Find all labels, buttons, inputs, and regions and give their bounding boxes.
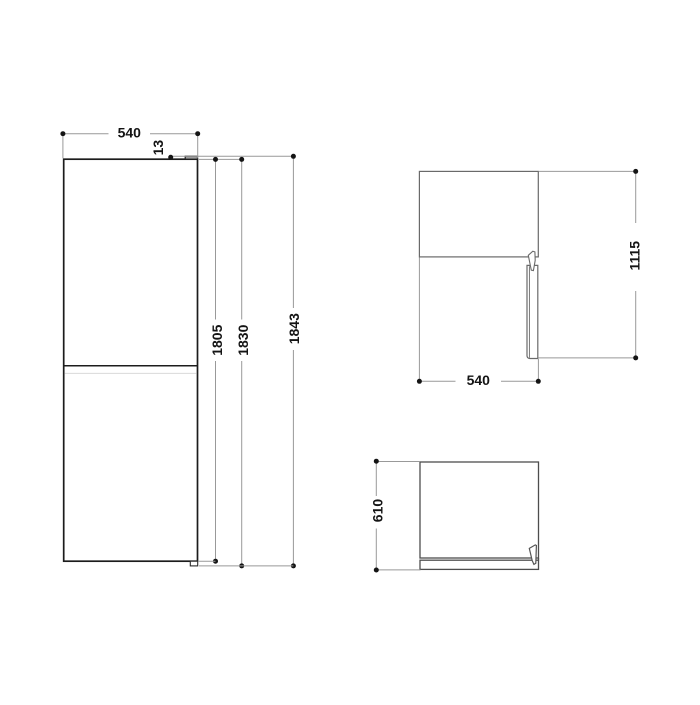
svg-text:13: 13 <box>150 140 166 156</box>
svg-text:610: 610 <box>370 499 386 523</box>
svg-text:540: 540 <box>118 124 142 140</box>
svg-text:1830: 1830 <box>235 324 251 355</box>
svg-text:1843: 1843 <box>286 313 302 344</box>
svg-text:540: 540 <box>467 372 491 388</box>
svg-text:1115: 1115 <box>626 241 642 271</box>
svg-text:1805: 1805 <box>209 324 225 355</box>
